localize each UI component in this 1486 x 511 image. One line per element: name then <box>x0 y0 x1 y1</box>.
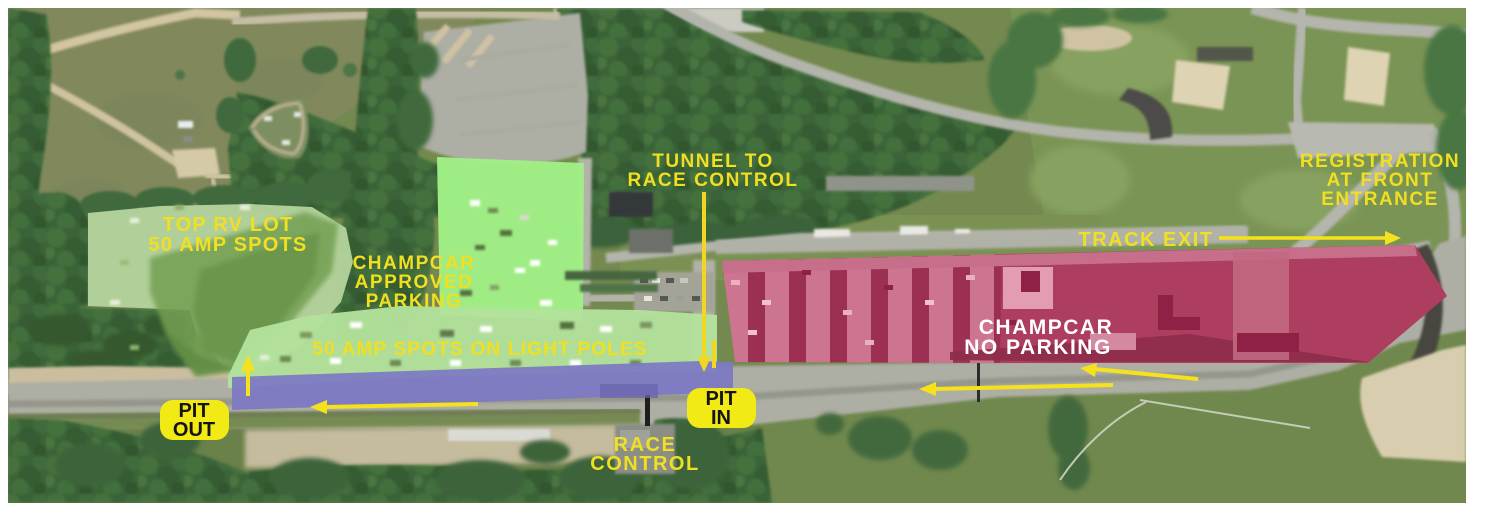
svg-text:IN: IN <box>711 407 731 429</box>
svg-text:TOP RV LOT: TOP RV LOT <box>163 214 294 236</box>
svg-text:NO PARKING: NO PARKING <box>964 336 1112 359</box>
svg-text:ENTRANCE: ENTRANCE <box>1321 189 1439 210</box>
svg-text:50 AMP SPOTS: 50 AMP SPOTS <box>149 234 308 256</box>
svg-text:CONTROL: CONTROL <box>590 453 699 475</box>
svg-text:AT FRONT: AT FRONT <box>1327 170 1434 191</box>
svg-text:PARKING: PARKING <box>366 291 463 312</box>
svg-text:OUT: OUT <box>173 419 215 441</box>
svg-text:TUNNEL TO: TUNNEL TO <box>652 151 774 172</box>
svg-text:RACE CONTROL: RACE CONTROL <box>627 170 798 191</box>
svg-text:TRACK EXIT: TRACK EXIT <box>1079 229 1214 251</box>
svg-text:APPROVED: APPROVED <box>355 272 474 293</box>
svg-text:CHAMPCAR: CHAMPCAR <box>353 253 476 274</box>
svg-text:REGISTRATION: REGISTRATION <box>1300 151 1460 172</box>
svg-text:50 AMP SPOTS ON LIGHT POLES: 50 AMP SPOTS ON LIGHT POLES <box>312 339 647 360</box>
